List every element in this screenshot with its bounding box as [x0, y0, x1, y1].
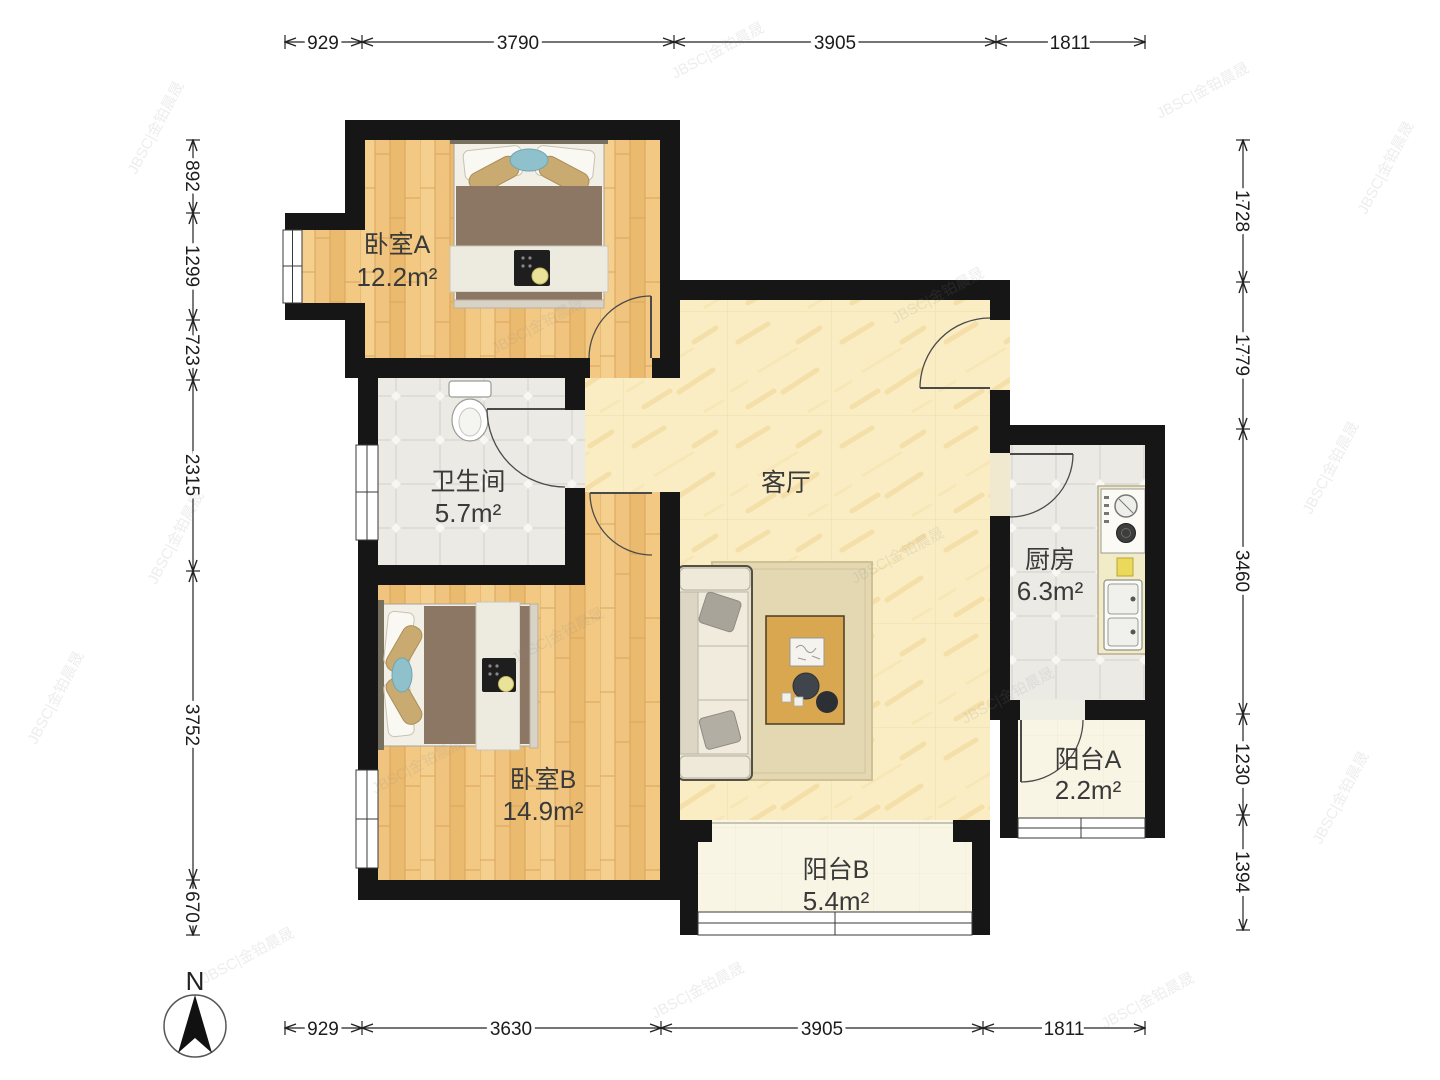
window-balcony-a [1018, 818, 1145, 838]
watermark-text: JBSC|金铂晨晟 [1355, 119, 1418, 217]
bed-bedroom-a [450, 134, 608, 308]
label-balcony-a-name: 阳台A [1055, 746, 1122, 774]
label-bathroom-name: 卫生间 [430, 468, 505, 496]
watermark-text: JBSC|金铂晨晟 [145, 489, 208, 587]
label-bedroom-a-area: 12.2m² [357, 262, 438, 292]
threshold-entry [990, 320, 1010, 390]
label-bathroom-area: 5.7m² [435, 498, 502, 528]
sink [1104, 580, 1142, 650]
dim-top-4: 1811 [1050, 33, 1091, 54]
threshold-bedroom-a [590, 358, 652, 378]
cutting-board [1117, 558, 1133, 576]
coffee-table [766, 616, 844, 724]
dim-left-6: 670 [181, 891, 202, 923]
dim-bottom-4: 1811 [1044, 1019, 1085, 1040]
floor-hallway [585, 378, 680, 492]
floorplan-canvas: 卧室A 12.2m² 卫生间 5.7m² 卧室B 14.9m² 客厅 厨房 6.… [0, 0, 1440, 1080]
dim-top-3: 3905 [814, 33, 856, 54]
watermark-text: JBSC|金铂晨晟 [1154, 60, 1252, 123]
watermark-text: JBSC|金铂晨晟 [1099, 970, 1197, 1033]
dim-right-5: 1394 [1231, 851, 1252, 894]
dim-left-5: 3752 [181, 704, 202, 746]
label-balcony-b-area: 5.4m² [803, 886, 870, 916]
label-bedroom-a-name: 卧室A [364, 231, 431, 259]
dim-bottom-3: 3905 [801, 1019, 843, 1040]
watermark-text: JBSC|金铂晨晟 [1310, 749, 1373, 847]
threshold-kitchen [990, 453, 1010, 516]
dim-top-1: 929 [307, 33, 339, 54]
bed-bedroom-b [374, 600, 538, 750]
watermark-text: JBSC|金铂晨晟 [125, 79, 188, 177]
floorplan-svg: 卧室A 12.2m² 卫生间 5.7m² 卧室B 14.9m² 客厅 厨房 6.… [0, 0, 1440, 1080]
label-kitchen-area: 6.3m² [1017, 576, 1084, 606]
dim-bottom-2: 3630 [490, 1019, 532, 1040]
window-bedroom-a-bay [283, 230, 302, 303]
threshold-balcony-a [1020, 700, 1085, 720]
label-kitchen-name: 厨房 [1025, 546, 1075, 574]
dim-right-4: 1230 [1231, 743, 1252, 785]
dim-top-2: 3790 [497, 33, 539, 54]
sofa [678, 566, 752, 780]
dimension-chain-right: 1728 1779 3460 1230 1394 [1231, 140, 1252, 930]
dim-right-2: 1779 [1231, 334, 1252, 376]
label-bedroom-b-area: 14.9m² [503, 796, 584, 826]
watermark-text: JBSC|金铂晨晟 [649, 960, 747, 1023]
threshold-bathroom [565, 410, 585, 488]
label-balcony-a-area: 2.2m² [1055, 775, 1122, 805]
dim-left-2: 1299 [181, 245, 202, 287]
label-bedroom-b-name: 卧室B [510, 766, 577, 794]
kitchen-counter [1098, 486, 1148, 654]
dim-bottom-1: 929 [307, 1019, 339, 1040]
watermark-text: JBSC|金铂晨晟 [669, 20, 767, 83]
dim-left-3: 723 [181, 334, 202, 366]
label-living-room-name: 客厅 [761, 469, 811, 497]
dim-right-3: 3460 [1231, 550, 1252, 592]
watermark-text: JBSC|金铂晨晟 [1300, 419, 1363, 517]
toilet [449, 381, 491, 441]
stove [1101, 489, 1145, 553]
dimension-chain-bottom: 929 3630 3905 1811 [285, 1019, 1145, 1040]
waterm ark-text: JBSC|金铂晨晟 [199, 925, 297, 988]
label-balcony-b-name: 阳台B [803, 856, 870, 884]
dim-right-1: 1728 [1231, 190, 1252, 232]
window-bathroom [356, 445, 378, 540]
dim-left-1: 892 [181, 160, 202, 192]
watermark-text: JBSC|金铂晨晟 [25, 649, 88, 747]
floor-corridor [585, 492, 660, 585]
